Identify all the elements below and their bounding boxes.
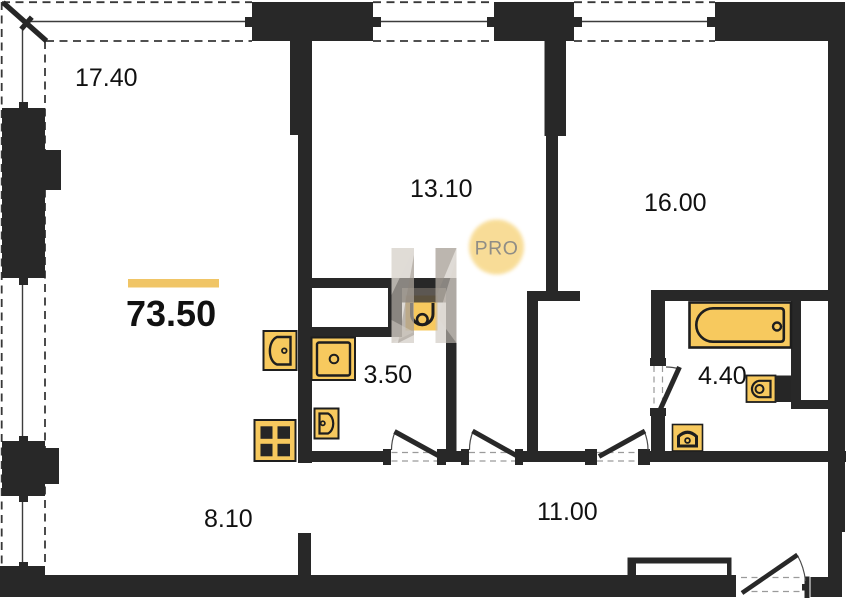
svg-text:4.40: 4.40: [698, 362, 747, 390]
svg-text:3.50: 3.50: [364, 361, 413, 389]
svg-text:13.10: 13.10: [410, 175, 473, 203]
svg-text:8.10: 8.10: [204, 505, 253, 533]
svg-text:PRO: PRO: [475, 238, 519, 260]
svg-text:17.40: 17.40: [75, 64, 138, 92]
svg-text:16.00: 16.00: [644, 189, 707, 217]
svg-text:11.00: 11.00: [537, 498, 598, 526]
svg-text:73.50: 73.50: [126, 293, 216, 334]
